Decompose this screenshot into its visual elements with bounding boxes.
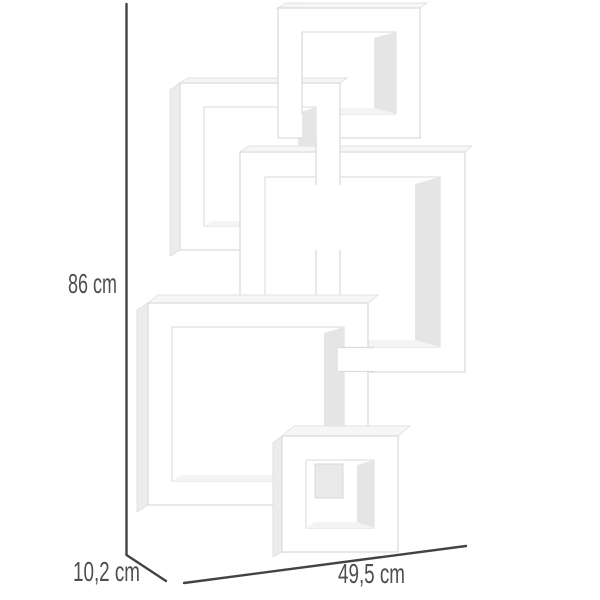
dimension-diagram: 86 cm 10,2 cm 49,5 cm [0,0,600,600]
weave-patch-cube2-over-cube3 [316,141,340,185]
product-dimension-image: 86 cm 10,2 cm 49,5 cm [0,0,600,600]
weave-patch-cube1-over-cube2 [278,8,302,138]
cube-5 [273,426,410,557]
cube-shelf-illustration [137,3,472,557]
see-through-gap [315,464,343,498]
depth-label: 10,2 cm [73,556,140,587]
width-label: 49,5 cm [338,558,405,589]
weave-patch-cube3-over-cube4 [338,348,374,372]
height-label: 86 cm [68,268,117,299]
